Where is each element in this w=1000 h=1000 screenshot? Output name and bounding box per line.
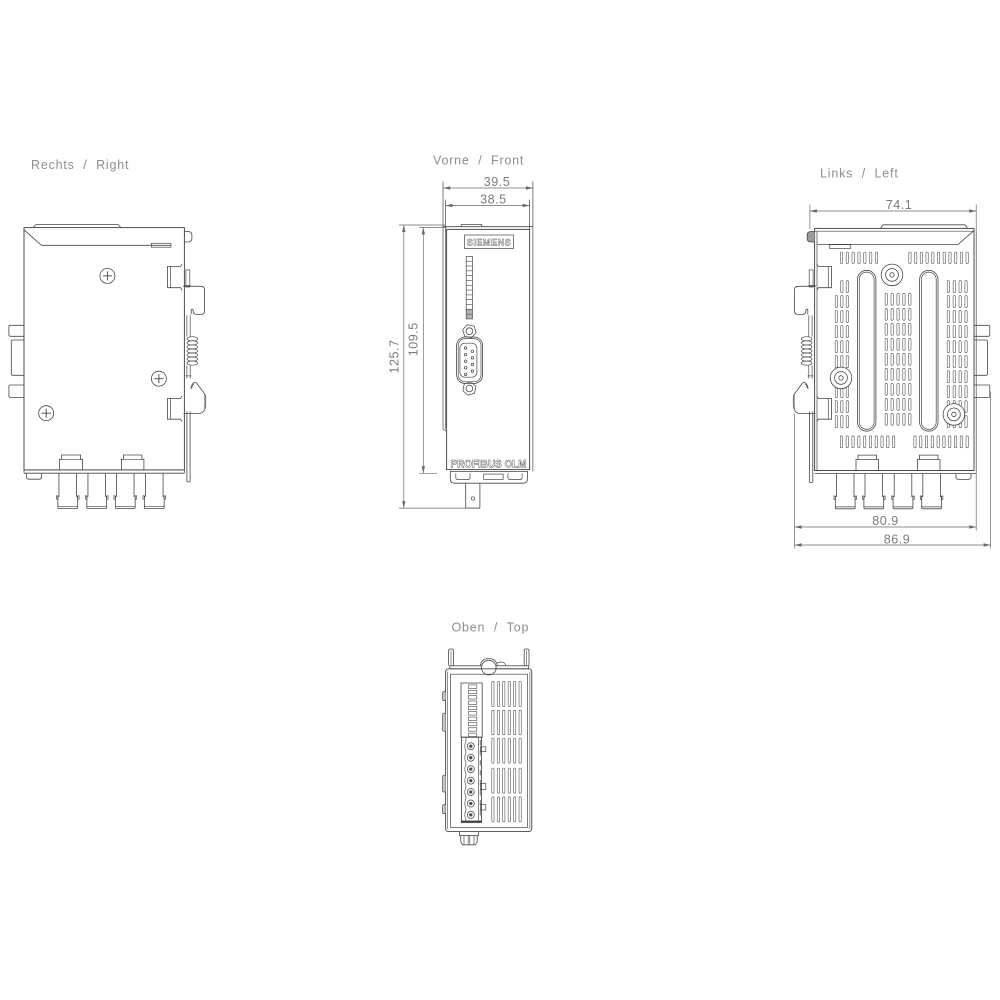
svg-text:Links / Left: Links / Left bbox=[820, 167, 899, 181]
svg-text:109.5: 109.5 bbox=[407, 322, 421, 356]
svg-text:SIEMENS: SIEMENS bbox=[467, 238, 512, 249]
svg-text:74.1: 74.1 bbox=[886, 198, 913, 212]
svg-text:PROFIBUS OLM: PROFIBUS OLM bbox=[451, 459, 527, 471]
svg-text:86.9: 86.9 bbox=[884, 532, 911, 546]
svg-text:125.7: 125.7 bbox=[387, 339, 401, 373]
svg-text:Vorne / Front: Vorne / Front bbox=[433, 154, 524, 168]
svg-text:Oben / Top: Oben / Top bbox=[452, 621, 530, 635]
svg-text:39.5: 39.5 bbox=[484, 175, 511, 189]
svg-text:38.5: 38.5 bbox=[480, 192, 507, 206]
svg-text:80.9: 80.9 bbox=[872, 514, 899, 528]
svg-text:Rechts / Right: Rechts / Right bbox=[31, 158, 129, 172]
